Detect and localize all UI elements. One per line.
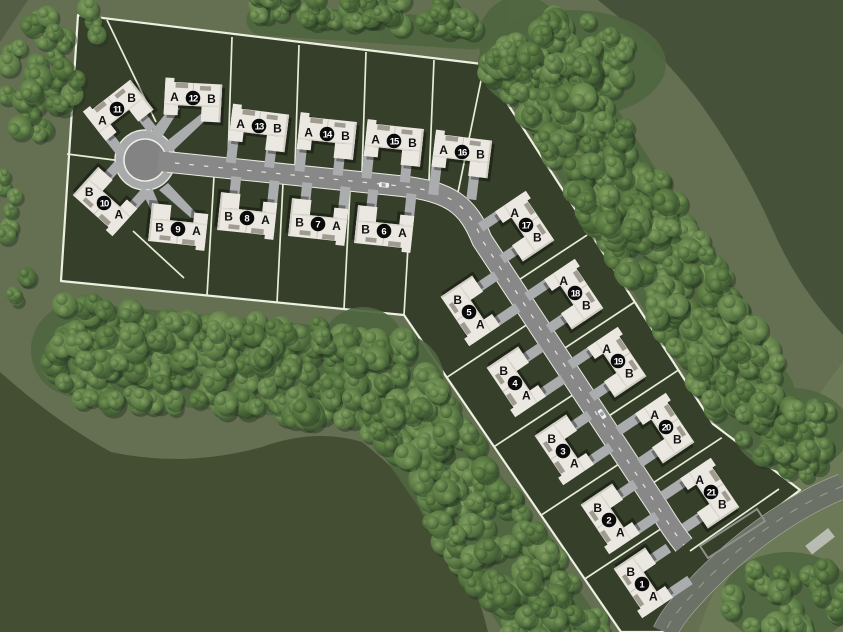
svg-text:A: A xyxy=(261,213,270,227)
svg-text:A: A xyxy=(304,125,313,139)
svg-text:2: 2 xyxy=(606,515,611,526)
svg-text:3: 3 xyxy=(560,446,565,457)
svg-text:B: B xyxy=(582,298,591,312)
svg-text:A: A xyxy=(192,224,201,238)
svg-text:19: 19 xyxy=(614,356,623,367)
svg-text:A: A xyxy=(439,143,448,157)
svg-text:B: B xyxy=(673,432,682,446)
svg-text:18: 18 xyxy=(571,288,580,299)
svg-text:A: A xyxy=(650,408,659,422)
svg-text:B: B xyxy=(207,92,216,106)
svg-text:A: A xyxy=(602,342,611,356)
svg-text:12: 12 xyxy=(189,93,198,104)
svg-text:A: A xyxy=(695,473,704,487)
svg-text:A: A xyxy=(398,226,407,240)
svg-text:20: 20 xyxy=(662,422,671,433)
svg-text:B: B xyxy=(593,501,602,515)
svg-text:B: B xyxy=(533,230,542,244)
svg-text:B: B xyxy=(273,122,282,136)
svg-text:B: B xyxy=(625,366,634,380)
svg-text:B: B xyxy=(85,185,94,199)
svg-text:B: B xyxy=(127,91,136,105)
svg-text:7: 7 xyxy=(315,219,320,230)
svg-text:A: A xyxy=(559,274,568,288)
svg-text:B: B xyxy=(499,364,508,378)
svg-text:B: B xyxy=(453,293,462,307)
svg-text:A: A xyxy=(510,206,519,220)
svg-text:B: B xyxy=(341,129,350,143)
svg-text:A: A xyxy=(649,589,658,603)
svg-text:A: A xyxy=(170,90,179,104)
svg-text:16: 16 xyxy=(458,147,467,158)
svg-text:B: B xyxy=(626,565,635,579)
svg-text:A: A xyxy=(236,117,245,131)
svg-text:A: A xyxy=(476,317,485,331)
svg-text:10: 10 xyxy=(100,198,109,209)
svg-text:B: B xyxy=(547,432,556,446)
svg-text:A: A xyxy=(332,219,341,233)
svg-text:B: B xyxy=(295,215,304,229)
svg-text:B: B xyxy=(476,148,485,162)
svg-text:A: A xyxy=(371,132,380,146)
svg-text:9: 9 xyxy=(175,224,180,235)
svg-text:4: 4 xyxy=(512,378,518,389)
svg-text:B: B xyxy=(361,222,370,236)
svg-text:17: 17 xyxy=(522,220,531,231)
svg-text:A: A xyxy=(616,525,625,539)
svg-text:B: B xyxy=(224,209,233,223)
svg-text:B: B xyxy=(155,220,164,234)
svg-text:1: 1 xyxy=(639,579,645,590)
svg-text:B: B xyxy=(718,497,727,511)
svg-text:13: 13 xyxy=(255,121,264,132)
svg-text:5: 5 xyxy=(466,307,472,318)
svg-text:A: A xyxy=(114,207,123,221)
svg-text:A: A xyxy=(570,456,579,470)
svg-text:6: 6 xyxy=(381,226,386,237)
svg-text:A: A xyxy=(522,388,531,402)
svg-text:8: 8 xyxy=(244,213,249,224)
svg-text:A: A xyxy=(98,114,107,128)
svg-text:B: B xyxy=(408,136,417,150)
